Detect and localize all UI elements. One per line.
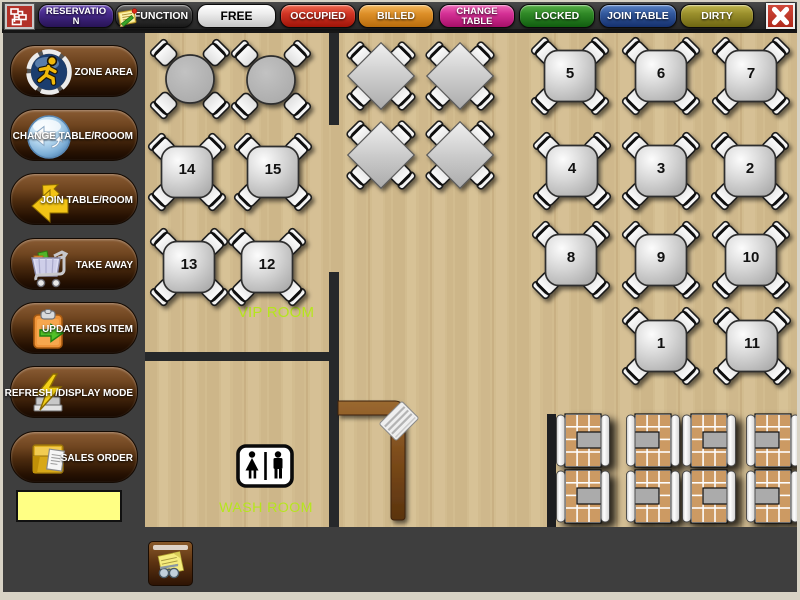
svg-text:1: 1	[657, 335, 665, 352]
svg-text:13: 13	[181, 256, 198, 273]
svg-text:15: 15	[265, 161, 282, 178]
svg-text:4: 4	[568, 160, 577, 177]
svg-text:7: 7	[747, 65, 755, 82]
svg-text:VIP ROOM: VIP ROOM	[238, 304, 314, 321]
svg-text:11: 11	[744, 335, 760, 352]
svg-text:9: 9	[657, 249, 665, 266]
svg-text:6: 6	[657, 65, 665, 82]
svg-text:10: 10	[743, 249, 760, 266]
svg-text:14: 14	[179, 161, 196, 178]
svg-text:12: 12	[259, 256, 276, 273]
svg-text:2: 2	[746, 160, 754, 177]
svg-text:8: 8	[567, 249, 575, 266]
svg-text:3: 3	[657, 160, 665, 177]
svg-text:5: 5	[566, 65, 574, 82]
svg-text:WASH ROOM: WASH ROOM	[219, 500, 313, 516]
